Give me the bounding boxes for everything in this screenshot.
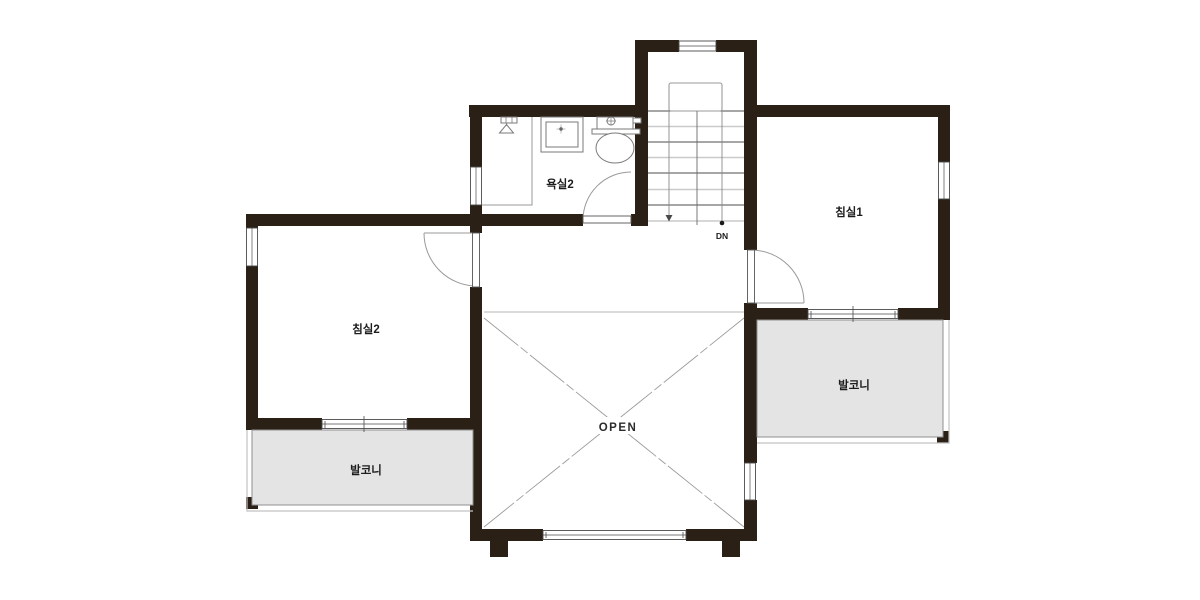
wall-segment [246,214,583,226]
door-leaf [748,250,755,303]
room-label-bathroom2: 욕실2 [546,177,574,191]
shower-icon [500,117,518,133]
door-swing-arc [424,233,477,286]
wall-segment [407,418,482,430]
door-swing-arc [583,172,631,220]
room-label-bedroom2: 침실2 [352,322,380,336]
wall-segment [744,303,757,463]
door-bathroom [583,172,631,223]
room-label-balcony-left: 발코니 [350,463,382,477]
shower-partition-line [482,117,532,205]
stair-handrail [669,83,722,111]
bathroom-fixtures [482,117,641,206]
wall-segment [631,214,648,226]
door-bedroom2 [424,233,480,287]
door-leaf [583,216,631,223]
wall-segment [938,105,950,162]
stair-steps [648,111,744,221]
floor-plan-svg: DN OPEN [0,0,1200,600]
door-leaf [473,233,480,287]
wall-segment [686,529,757,541]
stairs: DN [648,83,744,241]
dn-label: DN [716,231,728,241]
wall-segment [898,308,950,320]
door-swing-arc [751,250,804,303]
wall-segment [246,418,322,430]
sink-icon [541,117,583,152]
window-bedroom2-left [247,228,258,266]
window-stairwell-top [679,41,716,51]
balcony-floor [757,320,943,437]
wall-segment [938,199,950,320]
window-bathroom-left [471,167,482,205]
sliding-window-open-bottom [543,531,686,540]
pillar-stub [490,541,508,557]
wall-segment [246,214,258,228]
wall-segment [246,266,258,430]
wall-segment [469,105,648,117]
window-open-right [745,463,756,500]
wall-segment [470,529,543,541]
wall-segment [470,105,482,167]
dn-start-dot [720,221,725,226]
door-bedroom1 [748,250,805,303]
open-label: OPEN [599,422,638,434]
wall-segment [744,40,757,250]
open-area: OPEN [484,312,744,527]
floor-plan-canvas: DN OPEN [0,0,1200,600]
room-label-bedroom1: 침실1 [835,205,863,219]
pillar-stub [722,541,740,557]
window-bedroom1-right [939,162,950,199]
toilet-icon [592,117,641,164]
room-label-balcony-right: 발코니 [838,378,870,392]
wall-segment [744,105,950,117]
